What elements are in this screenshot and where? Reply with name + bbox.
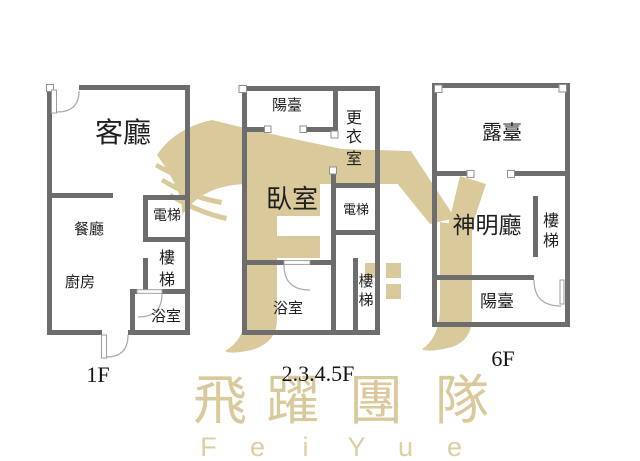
wall-top bbox=[79, 85, 190, 90]
wall-right bbox=[565, 83, 570, 327]
brand-char-4: 隊 bbox=[435, 371, 489, 431]
brand-char-1: 飛 bbox=[193, 371, 247, 431]
room-label-bedroom: 臥室 bbox=[266, 184, 318, 214]
wall-stair-stub bbox=[143, 258, 148, 290]
brand-letter-3: i bbox=[303, 432, 310, 461]
wall-closet-upper bbox=[333, 86, 338, 134]
wall-end-marker bbox=[331, 131, 338, 138]
wall-elevator-bottom bbox=[143, 237, 190, 242]
brand-char-3: 團 bbox=[349, 371, 403, 431]
brand-letter-6: e bbox=[447, 432, 463, 461]
wall-balcony-divider-right bbox=[307, 127, 333, 132]
room-label-terrace: 露臺 bbox=[482, 121, 522, 144]
room-label-elevator: 電梯 bbox=[343, 202, 369, 217]
room-label-stairs-char1: 樓 bbox=[543, 212, 559, 230]
room-label-elevator: 電梯 bbox=[153, 207, 181, 223]
balcony-door bbox=[534, 280, 564, 306]
room-label-bath: 浴室 bbox=[273, 300, 303, 317]
room-label-stairs-char2: 梯 bbox=[159, 271, 175, 289]
wall-right bbox=[185, 85, 190, 335]
wall-right bbox=[375, 86, 380, 335]
wall-stairs bbox=[533, 196, 538, 257]
room-label-kitchen: 廚房 bbox=[65, 273, 95, 291]
room-label-stairs-char2: 梯 bbox=[358, 292, 373, 309]
kitchen-exit-door bbox=[102, 335, 129, 358]
room-label-bath: 浴室 bbox=[151, 308, 181, 325]
wall-elevator-top bbox=[143, 195, 190, 200]
wall-closet-lower bbox=[331, 172, 336, 330]
floor-label-2345f: 2.3.4.5F bbox=[282, 361, 355, 386]
floorplan-image: 飛 躍 團 隊 F e i Y u e bbox=[0, 0, 640, 461]
wall-living-divider bbox=[47, 193, 113, 198]
room-label-closet-char2: 衣 bbox=[346, 128, 362, 146]
door-swing-arc bbox=[284, 265, 310, 290]
door-swing-arc bbox=[57, 91, 79, 112]
room-label-closet-char1: 更 bbox=[346, 110, 362, 127]
wall-left bbox=[47, 85, 52, 335]
wall-top bbox=[242, 86, 380, 91]
wall-elevator-bottom bbox=[336, 230, 375, 235]
wall-bath-top-left bbox=[247, 260, 284, 265]
corner-column-marker bbox=[435, 85, 443, 93]
wall-top bbox=[432, 83, 570, 88]
logo-y-left-arm bbox=[371, 151, 455, 224]
door-panel bbox=[137, 290, 162, 294]
corner-column-marker bbox=[239, 86, 247, 93]
bathroom-door bbox=[284, 261, 310, 290]
wall-bottom bbox=[242, 330, 380, 335]
wall-elevator-left bbox=[143, 195, 148, 242]
logo-square-3 bbox=[386, 284, 401, 299]
wall-elevator-top bbox=[336, 183, 375, 188]
room-label-balcony: 陽臺 bbox=[480, 292, 514, 311]
room-label-stairs-char1: 樓 bbox=[159, 249, 175, 267]
door-panel bbox=[52, 90, 57, 113]
wall-bottom bbox=[432, 322, 570, 327]
wall-bath-top-right bbox=[310, 260, 331, 265]
logo-square-2 bbox=[386, 263, 401, 278]
door-panel bbox=[102, 335, 107, 358]
floorplan-1f: 客廳 餐廳 廚房 電梯 樓 梯 浴室 bbox=[47, 85, 191, 359]
wall-balcony-divider bbox=[437, 275, 534, 280]
door-swing-arc bbox=[534, 280, 561, 306]
floor-label-6f: 6F bbox=[491, 346, 514, 371]
room-label-stairs-char2: 梯 bbox=[543, 232, 559, 250]
brand-letter-1: F bbox=[200, 432, 218, 461]
room-label-shrine: 神明廳 bbox=[453, 212, 522, 238]
brand-watermark-latin: F e i Y u e bbox=[200, 432, 463, 461]
floor-label-1f: 1F bbox=[86, 362, 109, 387]
brand-letter-5: u bbox=[398, 432, 414, 461]
brand-letter-4: Y bbox=[347, 432, 366, 461]
floorplan-page: 飛 躍 團 隊 F e i Y u e bbox=[0, 0, 640, 461]
wall-left bbox=[242, 86, 247, 335]
opening-end-marker bbox=[467, 170, 474, 177]
wall-end-marker bbox=[330, 167, 337, 174]
door-panel bbox=[560, 280, 564, 304]
door-panel bbox=[284, 261, 310, 265]
room-label-balcony: 陽臺 bbox=[272, 97, 302, 114]
wall-bath-left bbox=[130, 289, 135, 335]
window-marker bbox=[300, 126, 307, 133]
entry-door bbox=[52, 90, 80, 113]
wall-terrace-divider-left bbox=[437, 171, 470, 176]
room-label-closet-char3: 室 bbox=[346, 150, 362, 168]
wall-terrace-divider-right bbox=[514, 171, 565, 176]
logo-f-arm bbox=[277, 236, 320, 258]
room-label-stairs-char1: 樓 bbox=[358, 273, 373, 290]
wall-bath-top-right bbox=[162, 289, 190, 294]
wall-bottom-right bbox=[128, 330, 190, 335]
room-label-living: 客廳 bbox=[95, 117, 151, 148]
brand-letter-2: e bbox=[250, 432, 266, 461]
logo-y-stem bbox=[422, 222, 472, 351]
wall-left bbox=[432, 83, 437, 327]
wall-bottom-left bbox=[47, 330, 102, 335]
door-swing-arc bbox=[107, 335, 129, 357]
corner-column-marker bbox=[559, 85, 567, 93]
opening-end-marker bbox=[508, 170, 515, 177]
wall-stairs bbox=[353, 258, 358, 330]
room-label-dining: 餐廳 bbox=[74, 220, 104, 238]
window-marker bbox=[265, 126, 272, 133]
